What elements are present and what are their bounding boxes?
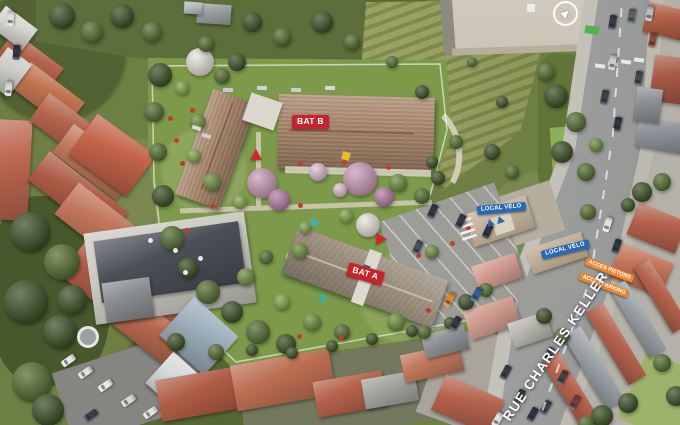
- top-annotations: RUE CHARLES KELLER ▶: [0, 0, 680, 425]
- aerial-site-plan: BAT B BAT A LOCAL VÉLO LOCAL VÉLO ACCES …: [0, 0, 680, 425]
- north-arrow-icon: ▶: [553, 1, 578, 26]
- street-name: RUE CHARLES KELLER: [500, 269, 611, 424]
- compass-needle-icon: ▶: [559, 7, 572, 20]
